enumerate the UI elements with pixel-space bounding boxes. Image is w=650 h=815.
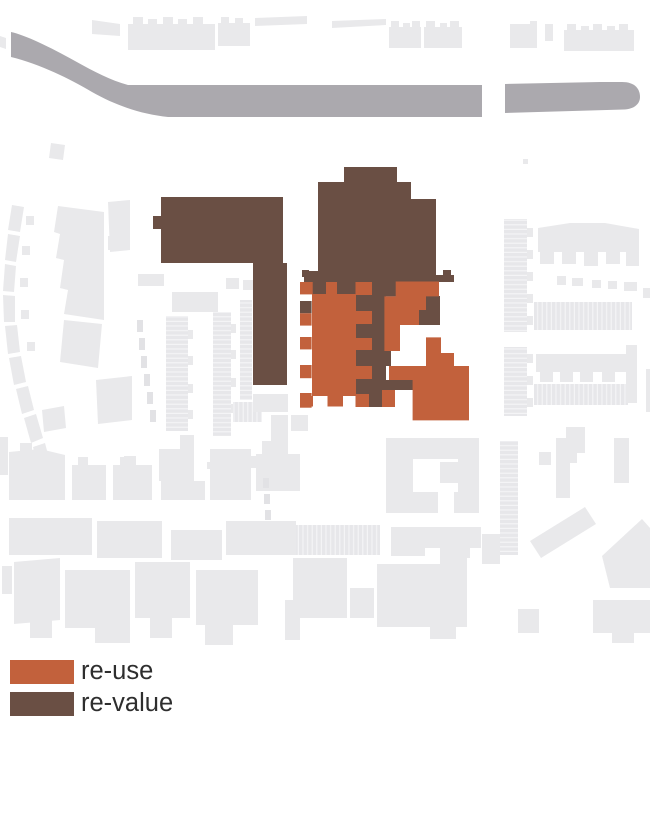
svg-text:re-value: re-value (81, 689, 173, 717)
svg-text:re-use: re-use (81, 657, 153, 685)
